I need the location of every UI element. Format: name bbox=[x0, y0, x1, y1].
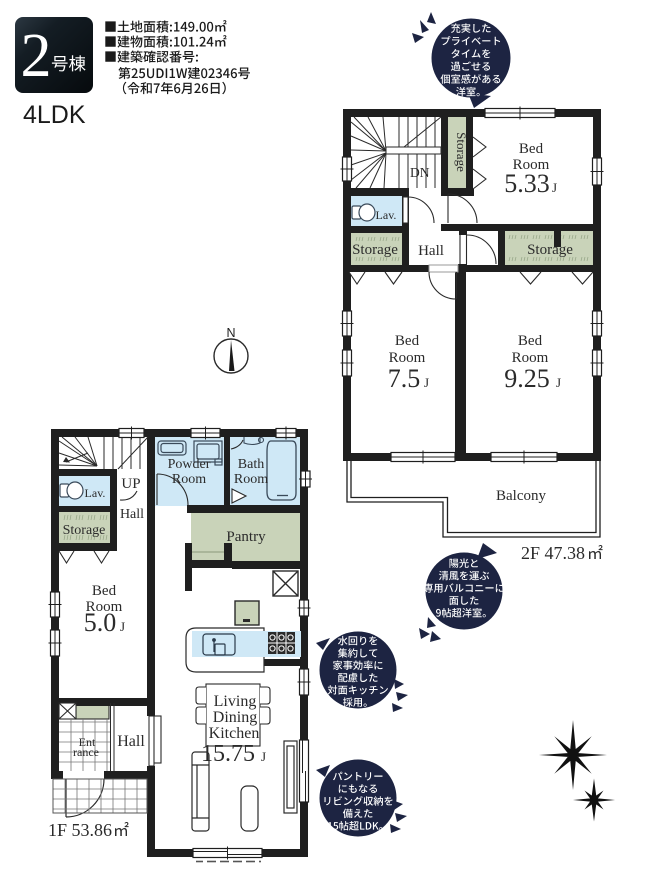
svg-text:Balcony: Balcony bbox=[496, 488, 546, 504]
svg-text:J: J bbox=[120, 619, 125, 634]
svg-text:1F 53.86: 1F 53.86 bbox=[48, 820, 112, 840]
svg-text:Bed: Bed bbox=[395, 333, 420, 349]
svg-text:Bath: Bath bbox=[238, 457, 264, 472]
svg-text:J: J bbox=[261, 749, 266, 764]
svg-text:4LDK: 4LDK bbox=[23, 101, 86, 129]
svg-text:Bed: Bed bbox=[518, 333, 543, 349]
svg-text:Dining: Dining bbox=[213, 709, 257, 726]
svg-text:Storage: Storage bbox=[454, 132, 469, 172]
svg-text:7.5: 7.5 bbox=[388, 364, 421, 393]
svg-text:Pantry: Pantry bbox=[226, 529, 266, 545]
svg-text:Lav.: Lav. bbox=[376, 208, 397, 222]
svg-text:Bed: Bed bbox=[519, 141, 544, 157]
svg-text:J: J bbox=[556, 375, 561, 390]
svg-text:2: 2 bbox=[21, 22, 52, 90]
svg-text:Powder: Powder bbox=[168, 457, 211, 472]
svg-text:5.0: 5.0 bbox=[84, 608, 117, 637]
svg-text:Kitchen: Kitchen bbox=[209, 725, 260, 742]
svg-text:Hall: Hall bbox=[120, 507, 144, 522]
svg-text:Bed: Bed bbox=[92, 583, 117, 599]
svg-text:Room: Room bbox=[172, 472, 206, 487]
svg-text:2F 47.38: 2F 47.38 bbox=[521, 543, 585, 563]
svg-text:UP: UP bbox=[121, 476, 140, 492]
svg-text:Storage: Storage bbox=[63, 523, 106, 538]
svg-text:9.25: 9.25 bbox=[504, 364, 550, 393]
svg-text:N: N bbox=[226, 326, 235, 340]
svg-text:Hall: Hall bbox=[418, 243, 444, 259]
svg-text:Storage: Storage bbox=[527, 242, 573, 258]
svg-text:J: J bbox=[552, 180, 557, 195]
svg-text:J: J bbox=[424, 375, 429, 390]
svg-text:Room: Room bbox=[234, 472, 268, 487]
svg-text:DN: DN bbox=[410, 165, 430, 180]
svg-text:Lav.: Lav. bbox=[85, 486, 106, 500]
svg-text:rance: rance bbox=[73, 745, 99, 759]
svg-text:5.33: 5.33 bbox=[504, 169, 550, 198]
svg-text:15.75: 15.75 bbox=[201, 741, 255, 767]
svg-text:Storage: Storage bbox=[352, 242, 398, 258]
svg-text:Hall: Hall bbox=[117, 733, 145, 750]
svg-text:Living: Living bbox=[214, 693, 257, 710]
